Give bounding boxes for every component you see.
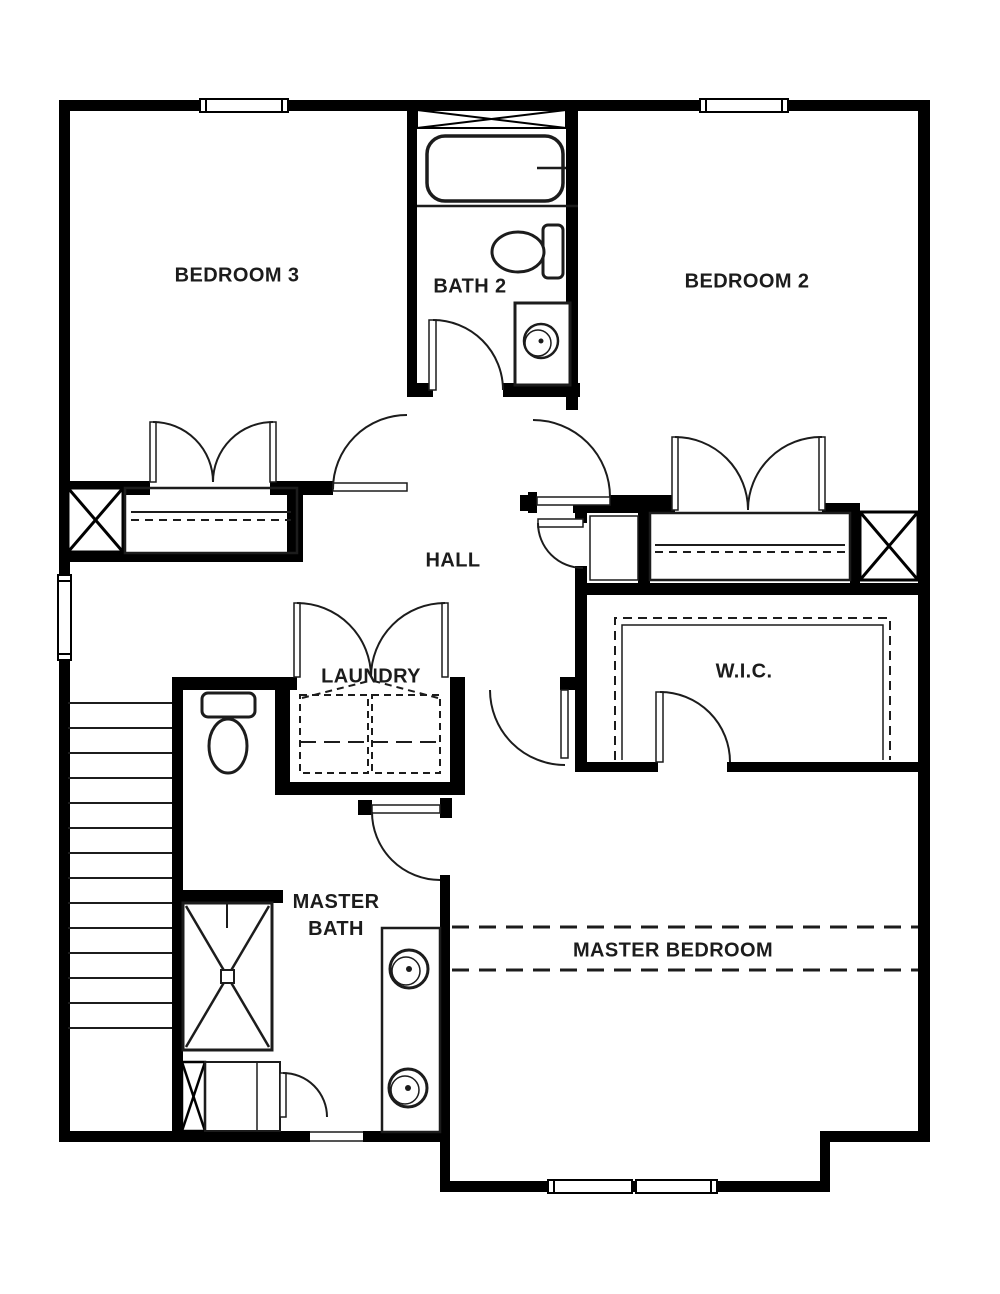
wic-door-arc bbox=[660, 692, 730, 762]
bedroom2-bifold-arc-left bbox=[675, 437, 748, 510]
hall-closet-door-leaf bbox=[538, 519, 583, 527]
bedroom2-door-arc bbox=[533, 420, 610, 497]
chase-box-right bbox=[860, 512, 918, 580]
small-closet-door-arc bbox=[283, 1073, 327, 1117]
bedroom2-closet bbox=[650, 513, 850, 580]
washer-dryer-icon bbox=[300, 681, 440, 773]
bedroom3-closet bbox=[125, 488, 297, 553]
window-master-2 bbox=[636, 1180, 717, 1193]
bedroom3-door-leaf bbox=[333, 483, 407, 491]
hatch-band-bath2 bbox=[417, 110, 566, 128]
room-label-bedroom-2: BEDROOM 2 bbox=[685, 269, 810, 296]
bathtub-icon bbox=[427, 136, 566, 201]
bedroom3-bifold-arc-right bbox=[213, 422, 273, 482]
bath2-door-leaf bbox=[429, 320, 436, 390]
bath2-fixtures bbox=[417, 136, 578, 385]
floor-plan-drawing bbox=[0, 0, 1000, 1294]
door-threshold bbox=[310, 1132, 363, 1141]
room-label-bedroom-3: BEDROOM 3 bbox=[175, 263, 300, 290]
bedroom2-bifold-arc-right bbox=[748, 437, 822, 510]
chase-box-left bbox=[68, 488, 123, 552]
bedroom2-door-leaf bbox=[537, 497, 610, 505]
hall-corridor-door-arc bbox=[490, 690, 565, 765]
room-label-master-bedroom: MASTER BEDROOM bbox=[573, 938, 773, 965]
window-stair-left bbox=[58, 575, 71, 660]
toilet-master-icon bbox=[202, 693, 255, 773]
bath2-door-arc bbox=[433, 320, 503, 390]
laundry-bifold-leaf-right bbox=[442, 603, 448, 677]
bedroom3-bifold-leaf-left bbox=[150, 422, 156, 482]
laundry-bifold-leaf-left bbox=[294, 603, 300, 677]
hall-closet-door-arc bbox=[538, 523, 583, 568]
bedroom3-door-arc bbox=[333, 415, 407, 489]
floor-plan: BEDROOM 3 BATH 2 BEDROOM 2 HALL LAUNDRY … bbox=[0, 0, 1000, 1294]
chase-strip-bottom bbox=[182, 1062, 205, 1131]
bedroom2-bifold-leaf-left bbox=[672, 437, 678, 510]
master-bath-door-arc bbox=[372, 812, 440, 880]
toilet-bath2-icon bbox=[492, 225, 563, 278]
master-vanity-icon bbox=[382, 928, 440, 1132]
shower-icon bbox=[183, 903, 272, 1050]
room-label-bath-2: BATH 2 bbox=[433, 274, 506, 301]
small-closet-door-leaf bbox=[280, 1073, 286, 1117]
hall-corridor-door-leaf bbox=[561, 690, 568, 758]
room-label-master-bath: MASTER BATH bbox=[277, 889, 395, 943]
linen-niche bbox=[590, 516, 638, 580]
bedroom2-bifold-leaf-right bbox=[819, 437, 825, 510]
bedroom3-bifold-leaf-right bbox=[270, 422, 276, 482]
wic-door-leaf bbox=[656, 692, 663, 762]
window-bedroom3-top bbox=[200, 99, 288, 112]
stairs bbox=[68, 703, 172, 1028]
window-bedroom2-top bbox=[700, 99, 788, 112]
window-master-1 bbox=[548, 1180, 632, 1193]
room-label-laundry: LAUNDRY bbox=[321, 664, 421, 691]
small-closet-bottom bbox=[205, 1062, 280, 1131]
room-label-hall: HALL bbox=[426, 548, 481, 575]
bedroom3-bifold-arc-left bbox=[153, 422, 213, 482]
room-label-wic: W.I.C. bbox=[716, 659, 773, 686]
bath2-vanity-sink-icon bbox=[515, 303, 570, 385]
master-bath-door-leaf bbox=[372, 805, 440, 813]
